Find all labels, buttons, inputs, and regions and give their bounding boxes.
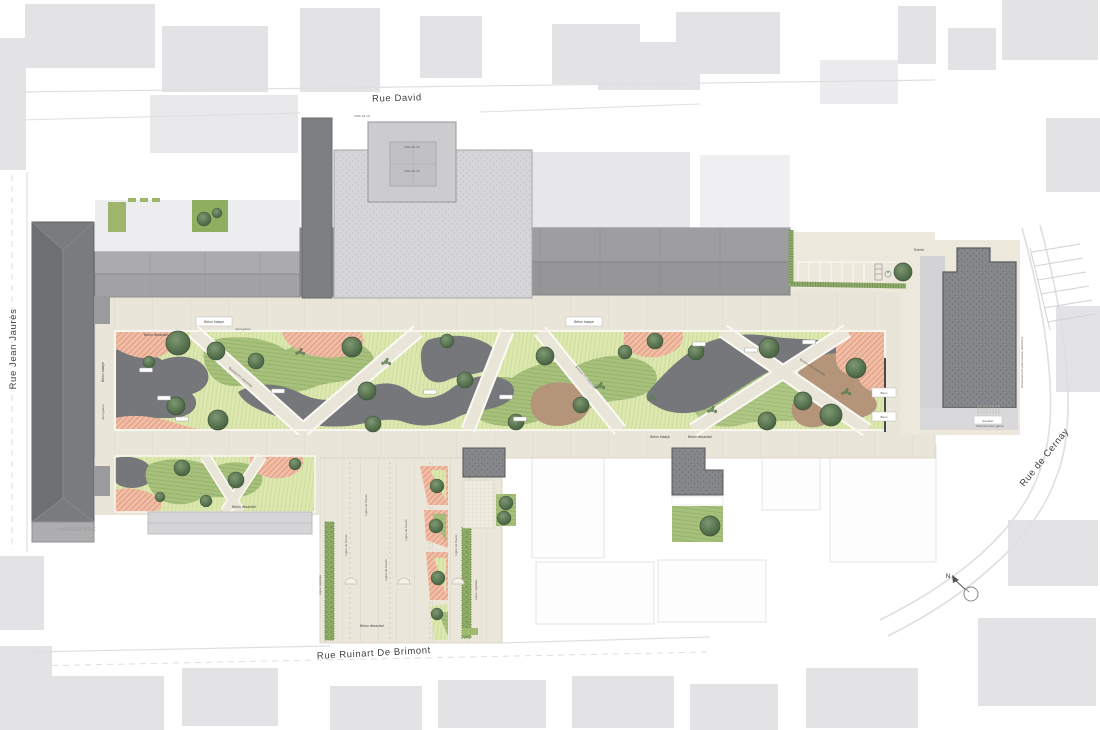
label-banc: Banc [880, 391, 888, 395]
label-ligne-de-paves: Ligne de Pavés [454, 534, 458, 556]
label-beton-balaye: Béton balayé [650, 435, 670, 439]
label-ngf-1: NGF 91.24 [404, 145, 419, 149]
street-label-rue-de-cernay: Rue de Cernay [1018, 426, 1072, 489]
north-label: N [946, 573, 951, 580]
label-beton-balaye: Béton balayé [204, 320, 224, 324]
label-escalier: Escalier [982, 419, 993, 423]
site-plan-page: Rue David Rue Jean Jaurès Rue de Cernay … [0, 0, 1100, 730]
white-parcels [532, 444, 936, 624]
label-ligne-vegetale: Ligne végétale [474, 580, 478, 600]
large-light-building [334, 122, 532, 298]
hedge-west [325, 522, 334, 640]
narrow-dark-building [302, 118, 332, 298]
north-arrow-icon: N [946, 573, 978, 601]
label-ngf-2: NGF 91.10 [354, 114, 369, 118]
label-banc: Banc [880, 415, 888, 419]
street-label-rue-ruinart: Rue Ruinart De Brimont [317, 645, 431, 662]
east-hall-building [920, 248, 1018, 430]
west-garden [115, 456, 315, 512]
label-ligne-de-paves: Ligne de Pavés [344, 534, 348, 556]
label-beton-balaye: Béton balayé [574, 320, 594, 324]
label-ngf-2: NGF 91.10 [404, 169, 419, 173]
street-label-rue-jean-jaures: Rue Jean Jaurès [8, 309, 19, 390]
label-beton-balaye: Béton balayé [101, 362, 105, 382]
label-beton-desactive: Béton désactivé [688, 435, 712, 439]
label-ligne-de-paves: Ligne de Pavés [404, 519, 408, 541]
label-ligne-de-paves: Ligne de Pavés [384, 559, 388, 581]
label-beton-desactive: Béton désactivé [144, 333, 168, 337]
label-cheminement-gazon: Cheminement gazon [976, 424, 1005, 428]
site-plan-svg: Rue David Rue Jean Jaurès Rue de Cernay … [0, 0, 1100, 730]
label-beton-desactive: Béton désactivé [360, 624, 384, 628]
street-label-rue-david: Rue David [372, 92, 422, 104]
label-joint-gazon: Joint gazon [235, 327, 251, 331]
label-niveau-rdc: NIVEAU RDC [60, 527, 96, 533]
label-ligne-de-paves: Ligne de Pavés [364, 494, 368, 516]
label-beton-desactive: Béton désactivé [232, 505, 256, 509]
label-ligne-vegetale: Ligne végétale [318, 575, 322, 595]
label-joint-gazon: Joint gazon [101, 404, 105, 420]
label-cheminement-pieton: Cheminement piéton béton désactivé [1020, 337, 1024, 388]
label-entree: Entrée [914, 248, 924, 252]
green-strip [462, 628, 478, 635]
